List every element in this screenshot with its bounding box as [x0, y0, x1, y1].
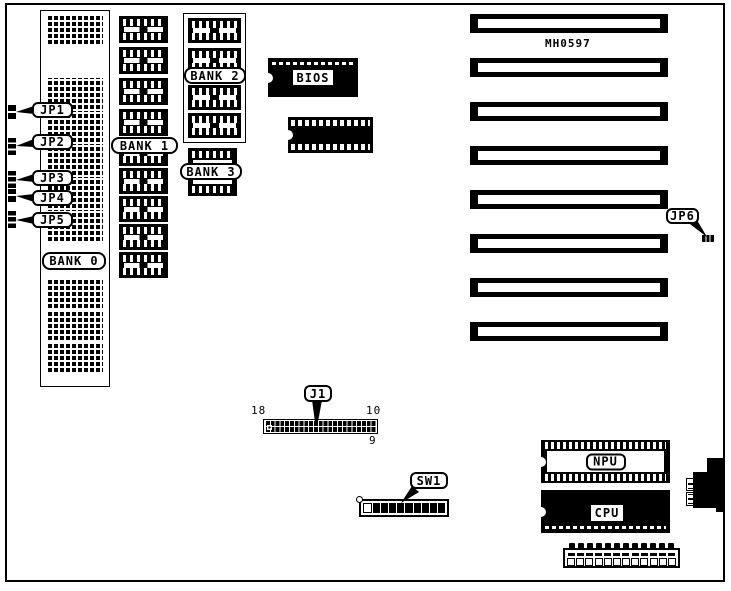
j1-pin-number-9: 9 [369, 434, 377, 447]
board-id-label: MH0597 [545, 37, 591, 50]
sw1-label: SW1 [410, 472, 448, 489]
jp6-label: JP6 [666, 208, 699, 224]
jp3-label: JP3 [32, 170, 73, 186]
bank3-label: BANK 3 [180, 163, 242, 180]
npu-label: NPU [586, 453, 626, 470]
jp2-label: JP2 [32, 134, 73, 150]
bank1-label: BANK 1 [111, 137, 178, 154]
leader-lines [0, 0, 731, 591]
bank0-label: BANK 0 [42, 252, 106, 270]
motherboard-diagram: BANK 0 JP1 JP2 JP3 JP4 JP5 BANK 1 [0, 0, 731, 591]
j1-label: J1 [304, 385, 332, 402]
j1-pin-number-10: 10 [366, 404, 381, 417]
jp1-label: JP1 [32, 102, 73, 118]
jp5-label: JP5 [32, 212, 73, 228]
jp4-label: JP4 [32, 190, 73, 206]
bank2-label: BANK 2 [184, 67, 246, 84]
j1-pin-number-18: 18 [251, 404, 266, 417]
